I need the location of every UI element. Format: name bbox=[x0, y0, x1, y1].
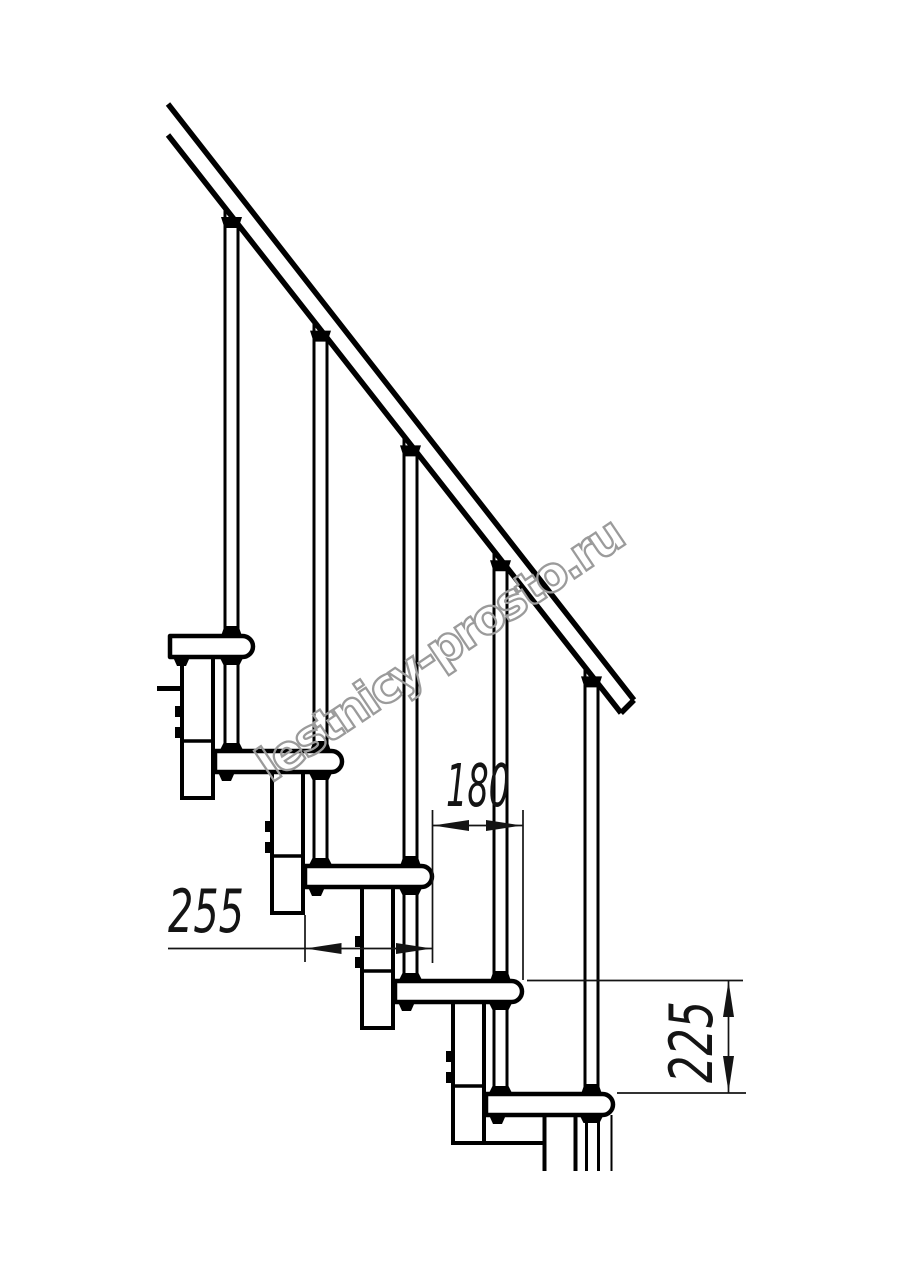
column-bolt-lower-2 bbox=[265, 842, 273, 853]
baluster-base-collar-5 bbox=[581, 1084, 602, 1094]
column-bolt-upper-2 bbox=[265, 821, 273, 832]
arrowhead-255-left bbox=[306, 943, 342, 954]
tread-fastener-2 bbox=[218, 772, 235, 781]
support-column-1 bbox=[182, 657, 213, 798]
baluster-rod-2 bbox=[314, 772, 327, 866]
tread-3 bbox=[305, 866, 432, 887]
tread-fastener-4 bbox=[398, 1002, 415, 1011]
tread-2 bbox=[215, 751, 342, 772]
baluster-2 bbox=[314, 324, 327, 751]
column-bolt-lower-4 bbox=[446, 1072, 454, 1083]
drawing-canvas: 180 255 225 lestnicy-prosto.ru bbox=[0, 0, 914, 1280]
baluster-top-collar-4 bbox=[490, 560, 511, 571]
tread-5 bbox=[486, 1094, 613, 1115]
tread-1 bbox=[170, 636, 253, 657]
baluster-base-collar-4 bbox=[490, 971, 511, 981]
baluster-top-collar-5 bbox=[581, 676, 602, 687]
column-bolt-upper-3 bbox=[355, 936, 363, 947]
support-column-3 bbox=[362, 887, 393, 1028]
column-bolt-upper-1 bbox=[175, 706, 183, 717]
dimension-run-180: 180 bbox=[446, 751, 510, 820]
staircase-structure bbox=[157, 104, 634, 1171]
column-bolt-upper-4 bbox=[446, 1051, 454, 1062]
tread-fastener-3 bbox=[308, 887, 325, 896]
baluster-rod-1 bbox=[225, 657, 238, 751]
baluster-5 bbox=[585, 669, 598, 1094]
tread-4 bbox=[395, 981, 522, 1002]
baluster-rod-4 bbox=[494, 1002, 507, 1094]
column-bolt-lower-3 bbox=[355, 957, 363, 968]
dimension-depth-255: 255 bbox=[168, 877, 244, 947]
baluster-base-collar-3 bbox=[400, 856, 421, 866]
baluster-top-collar-3 bbox=[400, 445, 421, 456]
support-column-2 bbox=[272, 772, 303, 913]
baluster-rod-3 bbox=[404, 887, 417, 981]
column-bolt-lower-1 bbox=[175, 727, 183, 738]
baluster-base-collar-1 bbox=[221, 626, 242, 636]
arrowhead-180-left bbox=[433, 820, 469, 831]
tread-fastener-5 bbox=[489, 1115, 506, 1124]
baluster-top-collar-1 bbox=[221, 217, 242, 228]
support-column-4 bbox=[453, 1002, 484, 1143]
staircase-drawing-svg: 180 255 225 bbox=[0, 0, 914, 1280]
dimension-rise-225: 225 bbox=[657, 1001, 727, 1083]
baluster-top-collar-2 bbox=[310, 331, 331, 342]
baluster-1 bbox=[225, 210, 238, 636]
baluster-base-collar-2 bbox=[310, 741, 331, 751]
baluster-3 bbox=[404, 438, 417, 866]
